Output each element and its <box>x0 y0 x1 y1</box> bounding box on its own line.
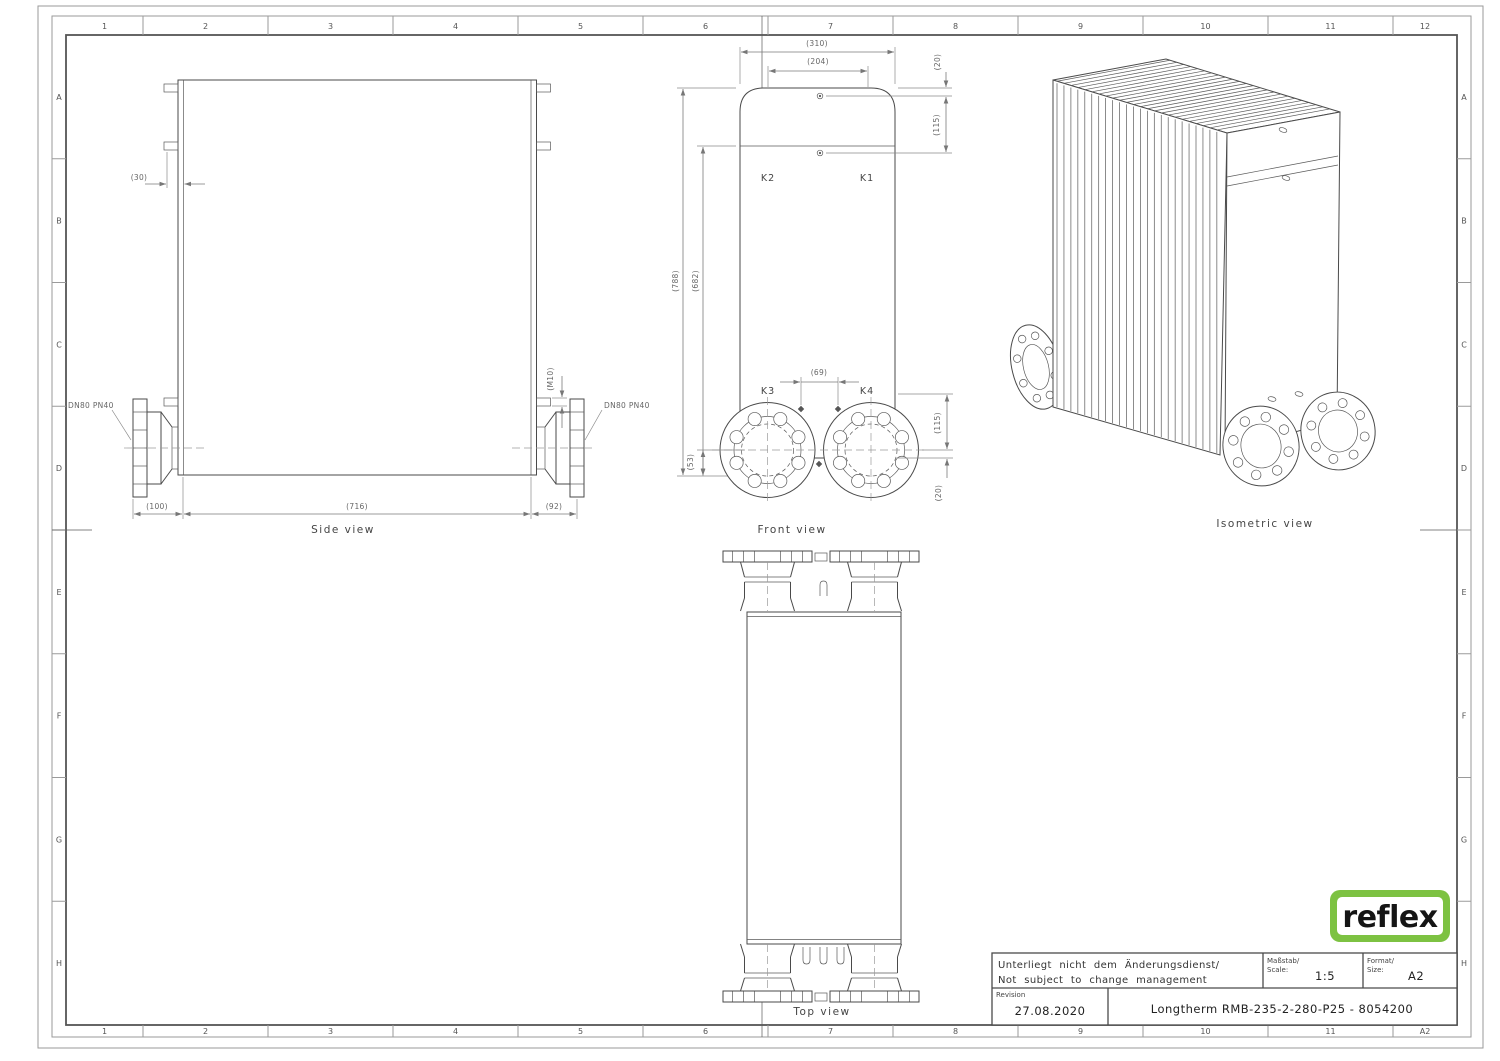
revision-label: Revision <box>996 991 1025 999</box>
grid-row-label-right: G <box>1461 835 1467 844</box>
side-view-title: Side view <box>311 524 375 536</box>
isometric-view-title: Isometric view <box>1216 518 1313 530</box>
dim-30: (30) <box>131 173 148 182</box>
stud <box>803 947 810 964</box>
grid-row-label-right: H <box>1461 959 1467 968</box>
grid-col-label-bottom: 8 <box>953 1027 958 1036</box>
grid-col-label: 4 <box>453 22 458 31</box>
stud <box>537 84 551 92</box>
grid-row-label-left: B <box>56 217 62 226</box>
grid-row-label-right: E <box>1461 588 1466 597</box>
stud <box>164 398 178 406</box>
grid-col-label: 6 <box>703 22 708 31</box>
grid-col-label: 12 <box>1420 22 1430 31</box>
stud <box>837 947 844 964</box>
drawing-sheet: 1122334455667788991010111112A2AABBCCDDEE… <box>0 0 1500 1061</box>
port-k2: K2 <box>761 173 775 184</box>
format-label-en: Size: <box>1367 966 1384 974</box>
grid-row-label-left: G <box>56 835 62 844</box>
dim-682: (682) <box>691 270 700 292</box>
scale-value: 1:5 <box>1315 969 1335 983</box>
grid-row-label-left: H <box>56 959 62 968</box>
top-hub-right <box>848 562 902 611</box>
stud <box>537 142 551 150</box>
dim-92: (92) <box>546 502 563 511</box>
stud <box>164 84 178 92</box>
flange-spec-right: DN80 PN40 <box>604 401 650 410</box>
dim-20-top: (20) <box>933 54 942 71</box>
grid-col-label-bottom: 4 <box>453 1027 458 1036</box>
grid-col-label-bottom: 9 <box>1078 1027 1083 1036</box>
grid-row-label-right: C <box>1461 340 1467 349</box>
dim-m10: (M10) <box>546 367 555 390</box>
grid-col-label-bottom: 2 <box>203 1027 208 1036</box>
grid-col-label-bottom: 5 <box>578 1027 583 1036</box>
port-k4: K4 <box>860 386 874 397</box>
port-k3: K3 <box>761 386 775 397</box>
note-line1: Unterliegt nicht dem Änderungsdienst/ <box>998 958 1220 971</box>
isometric-view: Isometric view <box>1002 59 1382 530</box>
grid-col-label-bottom: 6 <box>703 1027 708 1036</box>
format-label-de: Format/ <box>1367 957 1395 965</box>
grid-row-label-right: F <box>1462 712 1467 721</box>
reflex-logo: reflex <box>1330 890 1450 942</box>
grid-row-label-left: F <box>57 712 62 721</box>
grid-row-label-right: A <box>1461 93 1467 102</box>
dim-20-bottom: (20) <box>934 485 943 502</box>
top-hub-left <box>741 562 795 611</box>
scale-label-en: Scale: <box>1267 966 1288 974</box>
grid-col-label: 11 <box>1325 22 1335 31</box>
dim-115-top: (115) <box>932 114 941 136</box>
grid-row-label-right: D <box>1461 464 1467 473</box>
grid-col-label-bottom: A2 <box>1420 1027 1431 1036</box>
drawing-title: Longtherm RMB-235-2-280-P25 - 8054200 <box>1151 1002 1413 1016</box>
grid-row-label-left: D <box>56 464 62 473</box>
flange-spec-left: DN80 PN40 <box>68 401 114 410</box>
dim-115-bottom: (115) <box>933 412 942 434</box>
grid-col-label-bottom: 1 <box>102 1027 107 1036</box>
dim-69: (69) <box>811 368 828 377</box>
stud <box>820 581 827 596</box>
revision-date: 27.08.2020 <box>1015 1004 1086 1018</box>
stud <box>164 142 178 150</box>
stud <box>537 398 551 406</box>
grid-col-label: 1 <box>102 22 107 31</box>
grid-col-label-bottom: 3 <box>328 1027 333 1036</box>
stud <box>820 947 827 964</box>
dim-53: (53) <box>686 454 695 471</box>
dim-204: (204) <box>807 57 829 66</box>
grid-col-label: 7 <box>828 22 833 31</box>
grid-row-label-left: C <box>56 340 62 349</box>
bottom-hub-right <box>848 944 902 991</box>
title-block: Unterliegt nicht dem Änderungsdienst/ No… <box>992 953 1457 1025</box>
side-view: (30) DN80 PN40 DN80 PN40 <box>68 80 650 536</box>
dim-100: (100) <box>146 502 168 511</box>
top-view: Top view <box>723 551 919 1018</box>
grid-col-label-bottom: 10 <box>1200 1027 1210 1036</box>
grid-col-label: 8 <box>953 22 958 31</box>
front-view: (310) (204) (20) (115) (788) (682) K2 K1… <box>671 39 953 536</box>
grid-col-label: 10 <box>1200 22 1210 31</box>
grid-col-label: 2 <box>203 22 208 31</box>
grid-col-label-bottom: 7 <box>828 1027 833 1036</box>
dim-716: (716) <box>346 502 368 511</box>
grid-row-label-left: A <box>56 93 62 102</box>
stack-front-face <box>1053 80 1227 455</box>
scale-label-de: Maßstab/ <box>1267 957 1300 965</box>
logo-text: reflex <box>1342 900 1437 935</box>
note-line2: Not subject to change management <box>998 975 1207 986</box>
grid-col-label: 5 <box>578 22 583 31</box>
front-view-title: Front view <box>757 524 826 536</box>
grid-row-label-left: E <box>56 588 61 597</box>
port-k1: K1 <box>860 173 874 184</box>
grid-col-label: 9 <box>1078 22 1083 31</box>
grid-col-label-bottom: 11 <box>1325 1027 1335 1036</box>
dim-788: (788) <box>671 270 680 292</box>
bottom-hub-left <box>741 944 795 991</box>
grid-col-label: 3 <box>328 22 333 31</box>
top-view-title: Top view <box>792 1006 850 1018</box>
dim-310: (310) <box>806 39 828 48</box>
format-value: A2 <box>1408 969 1424 983</box>
grid-row-label-right: B <box>1461 217 1467 226</box>
